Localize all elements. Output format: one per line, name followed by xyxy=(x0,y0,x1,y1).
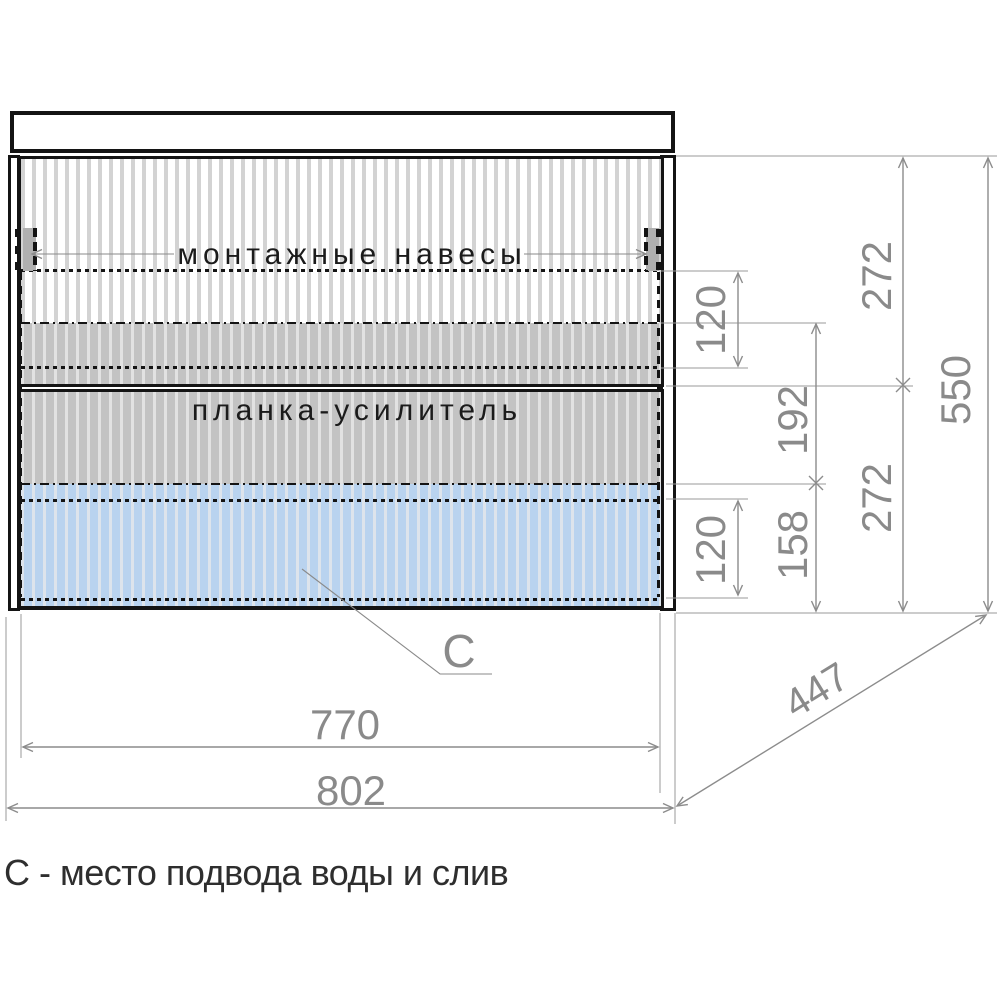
dim-272-lower: 272 xyxy=(853,463,901,533)
dim-802: 802 xyxy=(316,767,386,815)
dim-192: 192 xyxy=(769,385,817,455)
dim-158: 158 xyxy=(769,510,817,580)
label-mounting-hangers: монтажные навесы xyxy=(177,238,526,272)
leader-lines xyxy=(32,254,646,674)
dim-120-lower: 120 xyxy=(687,515,735,585)
dim-550: 550 xyxy=(932,355,980,425)
dim-line-447-depth xyxy=(677,615,986,806)
dimension-overlay xyxy=(0,0,1000,1000)
label-connection-marker: С xyxy=(442,624,475,678)
technical-drawing-canvas: монтажные навесы планка-усилитель С 120 … xyxy=(0,0,1000,1000)
dim-120-upper: 120 xyxy=(687,285,735,355)
dim-770: 770 xyxy=(310,701,380,749)
dim-272-upper: 272 xyxy=(853,241,901,311)
label-reinforcement-bar: планка-усилитель xyxy=(192,394,522,428)
note-text: С - место подвода воды и слив xyxy=(4,852,508,894)
